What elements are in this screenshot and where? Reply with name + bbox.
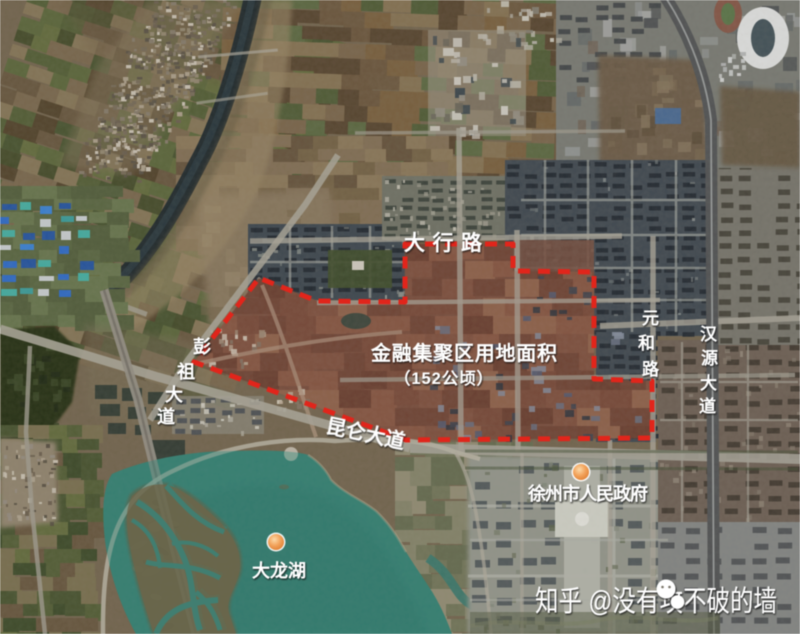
svg-text:元: 元 [642, 309, 659, 328]
svg-text:金融集聚区用地面积: 金融集聚区用地面积 [370, 341, 557, 365]
svg-text:徐州市人民政府: 徐州市人民政府 [527, 483, 648, 504]
svg-text:大: 大 [165, 384, 183, 405]
svg-text:知乎 @没有攻不破的墙: 知乎 @没有攻不破的墙 [535, 585, 777, 618]
svg-text:道: 道 [699, 396, 716, 416]
svg-text:大行路: 大行路 [404, 231, 483, 255]
svg-text:和: 和 [638, 334, 655, 353]
svg-text:路: 路 [642, 359, 660, 379]
svg-text:祖: 祖 [176, 361, 195, 382]
svg-text:汉: 汉 [700, 325, 718, 344]
svg-text:（152公顷）: （152公顷） [394, 368, 493, 388]
svg-text:源: 源 [701, 348, 718, 368]
svg-text:大: 大 [700, 373, 717, 393]
svg-text:大龙湖: 大龙湖 [252, 560, 306, 581]
svg-text:彭: 彭 [193, 336, 211, 357]
svg-text:道: 道 [157, 406, 175, 427]
